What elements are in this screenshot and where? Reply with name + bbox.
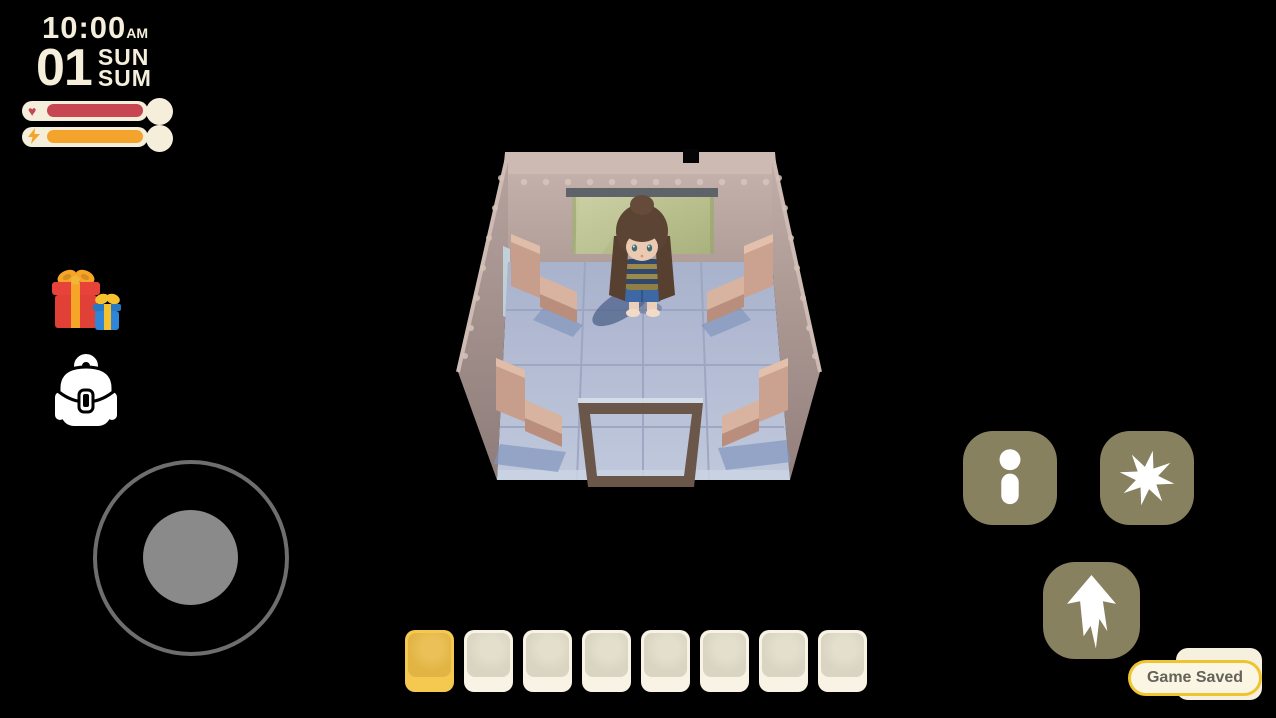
season-text: SUM xyxy=(98,65,152,91)
bolt-icon xyxy=(28,128,40,148)
hotbar-slot-inner xyxy=(526,633,569,677)
weekday-season: SUN SUM xyxy=(98,47,152,91)
meridiem-text: AM xyxy=(126,25,148,41)
hotbar-slot-2[interactable] xyxy=(464,630,513,692)
hotbar-slot-inner xyxy=(762,633,805,677)
status-bars: ♥ xyxy=(22,101,148,153)
hotbar-slot-inner xyxy=(703,633,746,677)
health-bar: ♥ xyxy=(22,101,148,121)
clock-display: 10:00AM 01 SUN SUM xyxy=(36,12,152,92)
hotbar-slot-7[interactable] xyxy=(759,630,808,692)
gift-button[interactable] xyxy=(50,266,124,334)
day-number: 01 xyxy=(36,45,92,92)
gift-icon xyxy=(50,266,124,334)
hotbar xyxy=(405,630,867,692)
hotbar-slot-6[interactable] xyxy=(700,630,749,692)
info-button[interactable] xyxy=(963,431,1057,525)
wall-notch xyxy=(683,149,699,163)
virtual-joystick[interactable] xyxy=(93,460,289,656)
door-frame-top-highlight xyxy=(578,398,703,403)
health-bar-fill xyxy=(47,104,143,117)
hotbar-slot-inner xyxy=(644,633,687,677)
wall-top-cap xyxy=(503,152,777,174)
hotbar-slot-inner xyxy=(467,633,510,677)
hotbar-slot-inner xyxy=(585,633,628,677)
burst-icon xyxy=(1106,431,1188,525)
energy-orb xyxy=(146,125,173,152)
jump-arrow-icon xyxy=(1049,562,1134,659)
health-orb xyxy=(146,98,173,125)
joystick-knob[interactable] xyxy=(143,510,238,605)
energy-bar xyxy=(22,127,148,147)
energy-bar-fill xyxy=(47,130,143,143)
hotbar-slot-3[interactable] xyxy=(523,630,572,692)
hair-bun xyxy=(630,195,654,215)
heart-icon: ♥ xyxy=(28,102,36,120)
backpack-button[interactable] xyxy=(52,350,120,428)
hotbar-slot-5[interactable] xyxy=(641,630,690,692)
hotbar-slot-1[interactable] xyxy=(405,630,454,692)
backpack-icon xyxy=(52,350,120,428)
hotbar-slot-inner xyxy=(408,633,451,677)
hotbar-slot-inner xyxy=(821,633,864,677)
hotbar-slot-4[interactable] xyxy=(582,630,631,692)
date-display: 01 SUN SUM xyxy=(36,45,152,92)
info-icon xyxy=(969,431,1051,525)
hotbar-slot-8[interactable] xyxy=(818,630,867,692)
jump-button[interactable] xyxy=(1043,562,1140,659)
interact-button[interactable] xyxy=(1100,431,1194,525)
game-saved-toast: Game Saved xyxy=(1128,660,1262,696)
